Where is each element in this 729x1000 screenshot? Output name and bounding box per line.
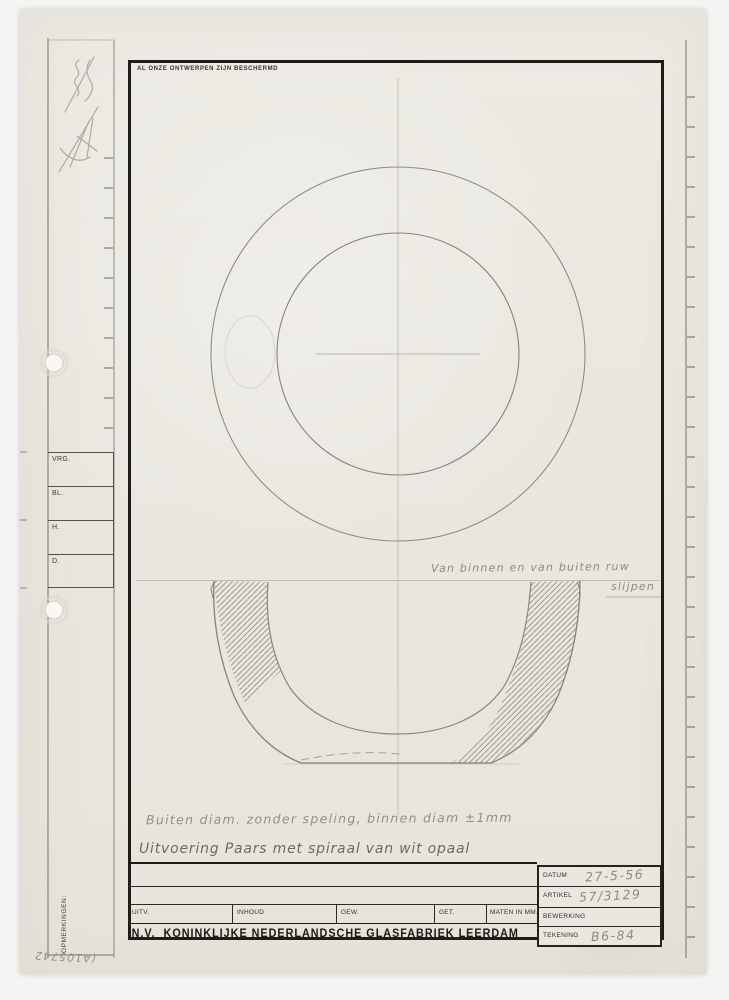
title-block-right: DATUM 27-5-56 ARTIKEL 57/3129 BEWERKING … — [537, 865, 662, 947]
field-artikel-value: 57/3129 — [579, 886, 642, 904]
column-uitv: UITV. — [128, 905, 233, 923]
grinding-note-line2: slijpen — [611, 580, 655, 593]
title-block-empty-row-1 — [128, 862, 537, 886]
column-gew: GEW. — [337, 905, 435, 923]
grinding-note-line1: Van binnen en van buiten ruw — [431, 560, 630, 575]
company-name: N.V. KONINKLIJKE NEDERLANDSCHE GLASFABRI… — [128, 926, 519, 940]
title-block-column-labels: UITV. INHOUD GEW. GET. MATEN IN MM. — [128, 904, 537, 923]
field-datum: DATUM 27-5-56 — [539, 867, 660, 886]
tolerance-note: Buiten diam. zonder speling, binnen diam… — [146, 810, 513, 828]
column-inhoud: INHOUD — [233, 905, 337, 923]
field-artikel-label: ARTIKEL — [543, 892, 572, 899]
field-bewerking: BEWERKING — [539, 907, 660, 926]
field-tekening-value: B6-84 — [591, 927, 636, 944]
title-block-left: UITV. INHOUD GEW. GET. MATEN IN MM. N.V.… — [128, 862, 537, 942]
scanned-technical-drawing-sheet: { "notices": { "protection": "AL ONZE ON… — [0, 0, 729, 1000]
margin-field-vrg: VRG. — [48, 452, 114, 486]
execution-note: Uitvoering Paars met spiraal van wit opa… — [139, 841, 470, 857]
field-bewerking-label: BEWERKING — [543, 913, 585, 920]
field-tekening-label: TEKENING — [543, 932, 579, 939]
column-get: GET. — [435, 905, 487, 923]
margin-field-d: D. — [48, 554, 114, 588]
remarks-label-vertical: OPMERKINGEN: — [61, 883, 68, 953]
field-datum-value: 27-5-56 — [585, 866, 645, 884]
margin-field-bl: BL. — [48, 486, 114, 520]
margin-field-h: H. — [48, 520, 114, 554]
drawing-frame — [128, 60, 664, 940]
field-datum-label: DATUM — [543, 872, 567, 879]
protection-notice: AL ONZE ONTWERPEN ZIJN BESCHERMD — [137, 66, 278, 72]
title-block-empty-row-2 — [128, 886, 537, 904]
column-maten-in-mm: MATEN IN MM. — [487, 905, 537, 923]
field-artikel: ARTIKEL 57/3129 — [539, 886, 660, 907]
field-tekening: TEKENING B6-84 — [539, 926, 660, 945]
company-name-row: N.V. KONINKLIJKE NEDERLANDSCHE GLASFABRI… — [128, 923, 537, 942]
